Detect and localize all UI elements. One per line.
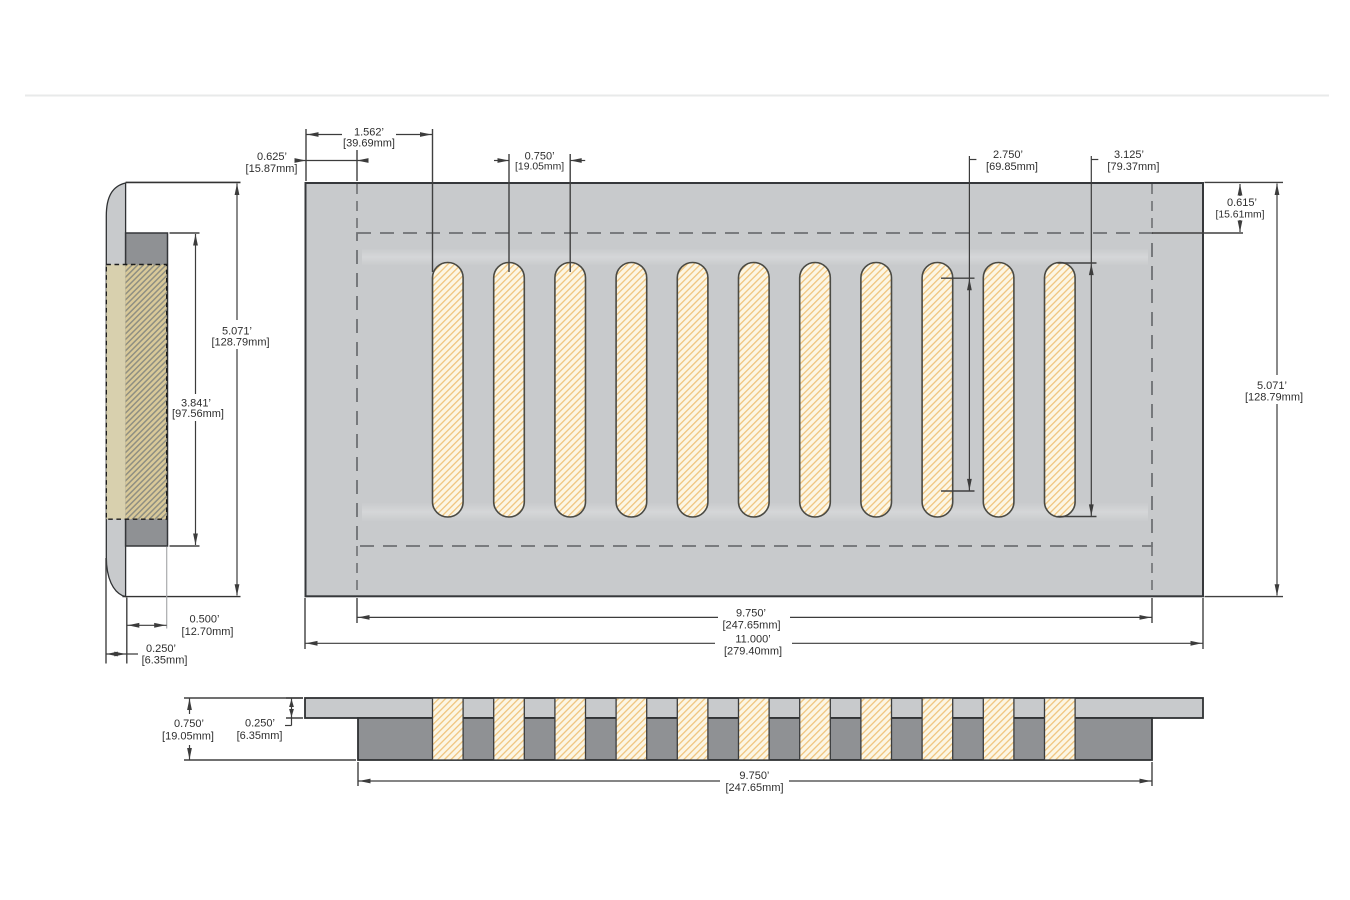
svg-text:0.250’: 0.250’: [146, 643, 176, 655]
svg-text:[97.56mm]: [97.56mm]: [172, 408, 224, 420]
svg-text:[15.87mm]: [15.87mm]: [246, 163, 298, 175]
svg-text:[19.05mm]: [19.05mm]: [515, 161, 564, 172]
svg-text:9.750’: 9.750’: [736, 608, 766, 620]
svg-text:0.250’: 0.250’: [245, 718, 275, 730]
svg-text:0.625’: 0.625’: [257, 151, 287, 163]
svg-text:[128.79mm]: [128.79mm]: [1245, 392, 1303, 404]
svg-text:[12.70mm]: [12.70mm]: [182, 626, 234, 638]
svg-text:[79.37mm]: [79.37mm]: [1107, 161, 1159, 173]
svg-text:[128.79mm]: [128.79mm]: [211, 336, 269, 348]
svg-text:[69.85mm]: [69.85mm]: [986, 161, 1038, 173]
svg-text:2.750’: 2.750’: [993, 149, 1023, 161]
svg-text:[279.40mm]: [279.40mm]: [724, 646, 782, 658]
svg-text:[6.35mm]: [6.35mm]: [142, 655, 188, 667]
svg-text:[6.35mm]: [6.35mm]: [237, 730, 283, 742]
svg-text:11.000’: 11.000’: [735, 633, 770, 645]
svg-text:[19.05mm]: [19.05mm]: [162, 731, 214, 743]
svg-text:9.750’: 9.750’: [739, 770, 769, 782]
svg-text:3.125’: 3.125’: [1114, 149, 1144, 161]
svg-text:0.615’: 0.615’: [1227, 197, 1257, 209]
svg-text:0.500’: 0.500’: [190, 614, 220, 626]
svg-text:5.071’: 5.071’: [1257, 380, 1287, 392]
svg-text:[15.61mm]: [15.61mm]: [1215, 210, 1264, 221]
svg-text:[247.65mm]: [247.65mm]: [725, 782, 783, 794]
svg-text:0.750’: 0.750’: [174, 718, 204, 730]
svg-text:[39.69mm]: [39.69mm]: [343, 138, 395, 150]
svg-text:[247.65mm]: [247.65mm]: [722, 620, 780, 632]
